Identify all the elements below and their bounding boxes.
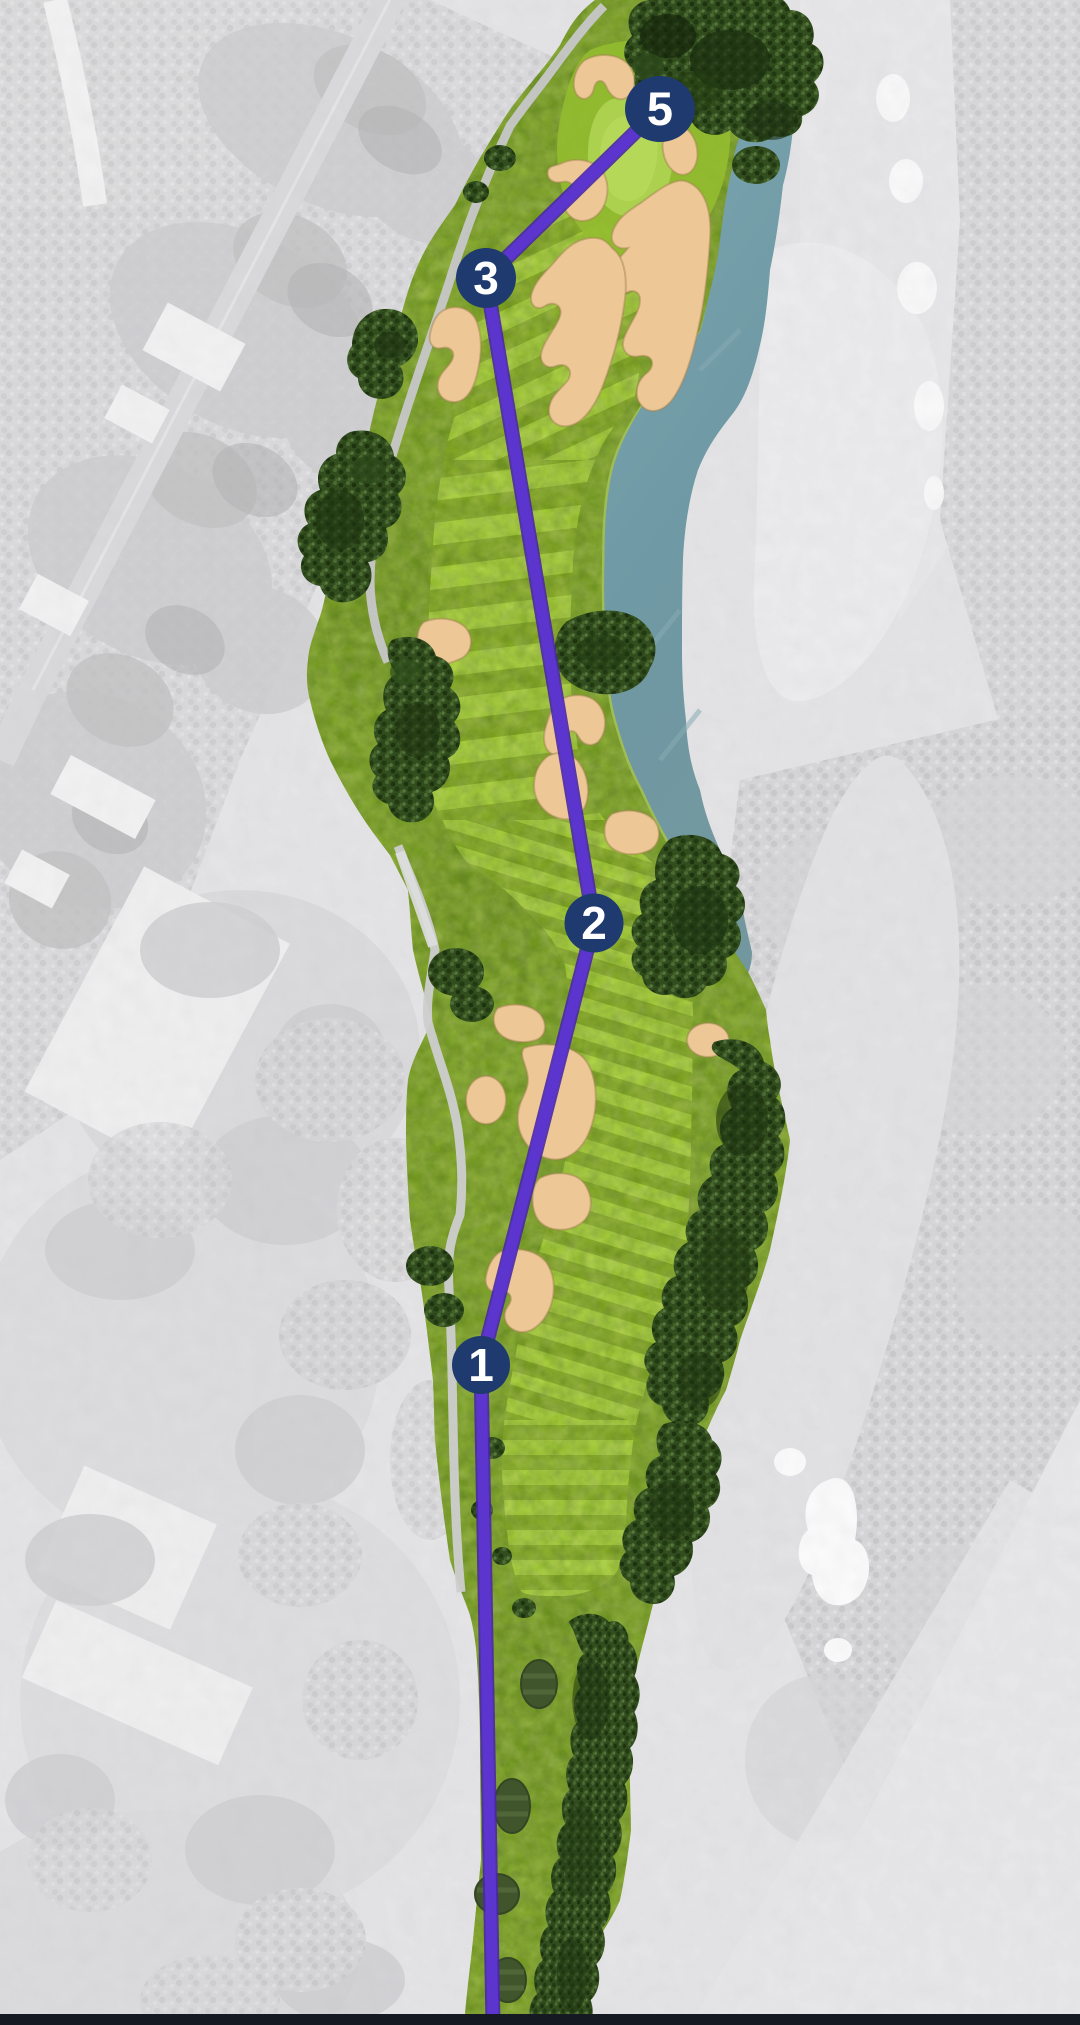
svg-text:3: 3: [473, 252, 499, 304]
svg-text:5: 5: [647, 82, 673, 135]
svg-text:2: 2: [581, 897, 607, 949]
svg-text:1: 1: [468, 1339, 494, 1391]
